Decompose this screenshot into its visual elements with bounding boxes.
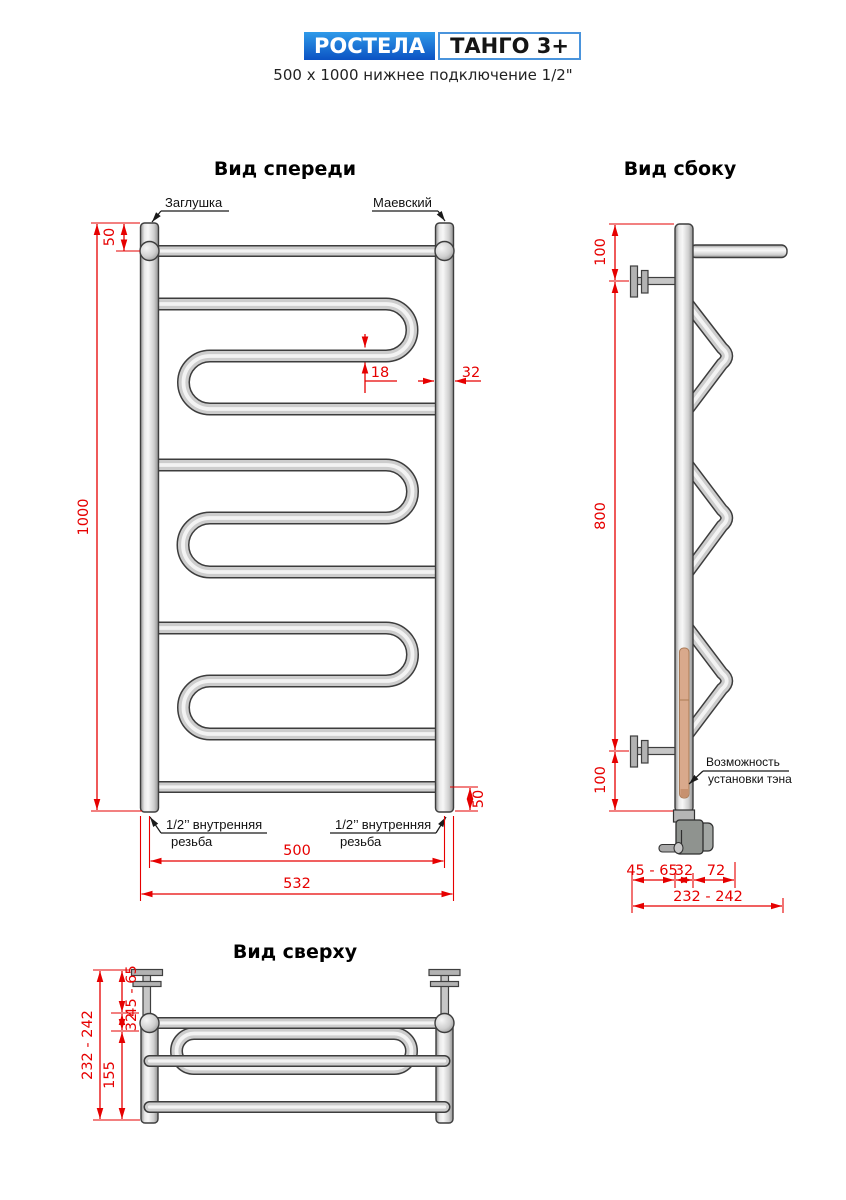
top-bar-side xyxy=(690,245,787,258)
technical-drawing: Вид спереди Заглушка Маевский 1/2’’ внут… xyxy=(0,0,846,1200)
dim-top-offset: 50 xyxy=(102,228,118,246)
top-joint-right xyxy=(435,1014,454,1033)
dim-overall-width: 532 xyxy=(283,876,311,892)
dim-wall-gap-side: 45 - 65 xyxy=(626,863,677,879)
front-view-title: Вид спереди xyxy=(214,158,356,180)
plug-joint xyxy=(140,242,159,261)
side-view: Вид сбоку xyxy=(593,158,792,913)
heater-rod xyxy=(680,648,690,798)
riser-right xyxy=(436,223,454,812)
air-valve-label: Маевский xyxy=(373,195,432,210)
dim-loop-depth: 72 xyxy=(707,863,725,879)
dim-tube-diameter: 18 xyxy=(371,365,389,381)
front-dimensions: 1000 50 18 32 50 500 532 xyxy=(76,223,487,901)
handle-joint xyxy=(674,843,683,854)
top-tubes xyxy=(150,1023,445,1107)
heater-label-1: Возможность xyxy=(706,755,780,769)
side-loops xyxy=(688,304,727,734)
thread-label-right-1: 1/2’’ внутренняя xyxy=(335,817,431,832)
front-view: Вид спереди Заглушка Маевский 1/2’’ внут… xyxy=(76,158,487,901)
heater-callout: Возможность установки тэна xyxy=(689,755,792,786)
thread-label-right-2: резьба xyxy=(340,834,382,849)
dim-front-depth-top: 155 xyxy=(102,1061,118,1089)
riser-left xyxy=(141,223,159,812)
dim-wall-gap-top: 45 - 65 xyxy=(124,965,140,1016)
thread-label-left-1: 1/2’’ внутренняя xyxy=(166,817,262,832)
dim-height: 1000 xyxy=(76,499,92,536)
air-valve-joint xyxy=(435,242,454,261)
electric-heater-unit xyxy=(659,810,713,854)
dim-overall-depth-top: 232 - 242 xyxy=(80,1010,96,1080)
side-bracket-flanges xyxy=(631,266,649,767)
dim-riser-diameter-top: 32 xyxy=(124,1013,140,1031)
top-joint-left xyxy=(140,1014,159,1033)
front-tubes xyxy=(150,251,445,787)
dim-axis-width: 500 xyxy=(283,843,311,859)
dim-riser-diameter-front: 32 xyxy=(462,365,480,381)
dim-riser-diameter-side: 32 xyxy=(675,863,693,879)
heater-label-2: установки тэна xyxy=(708,772,792,786)
dim-side-bottom: 100 xyxy=(593,766,609,794)
dim-overall-depth-side: 232 - 242 xyxy=(673,889,743,905)
plug-label: Заглушка xyxy=(165,195,223,210)
page: { "header": { "brand": "РОСТЕЛА", "model… xyxy=(0,0,846,1200)
dim-bottom-offset: 50 xyxy=(471,790,487,808)
top-brackets xyxy=(132,970,461,1021)
thread-label-left-2: резьба xyxy=(171,834,213,849)
side-view-title: Вид сбоку xyxy=(624,158,737,180)
dim-side-top: 100 xyxy=(593,238,609,266)
top-view-title: Вид сверху xyxy=(233,941,358,963)
dim-side-span: 800 xyxy=(593,502,609,530)
side-brackets xyxy=(637,278,677,755)
top-dimensions: 232 - 242 45 - 65 32 155 xyxy=(80,965,140,1120)
top-view: Вид сверху 232 - 242 xyxy=(80,941,460,1123)
